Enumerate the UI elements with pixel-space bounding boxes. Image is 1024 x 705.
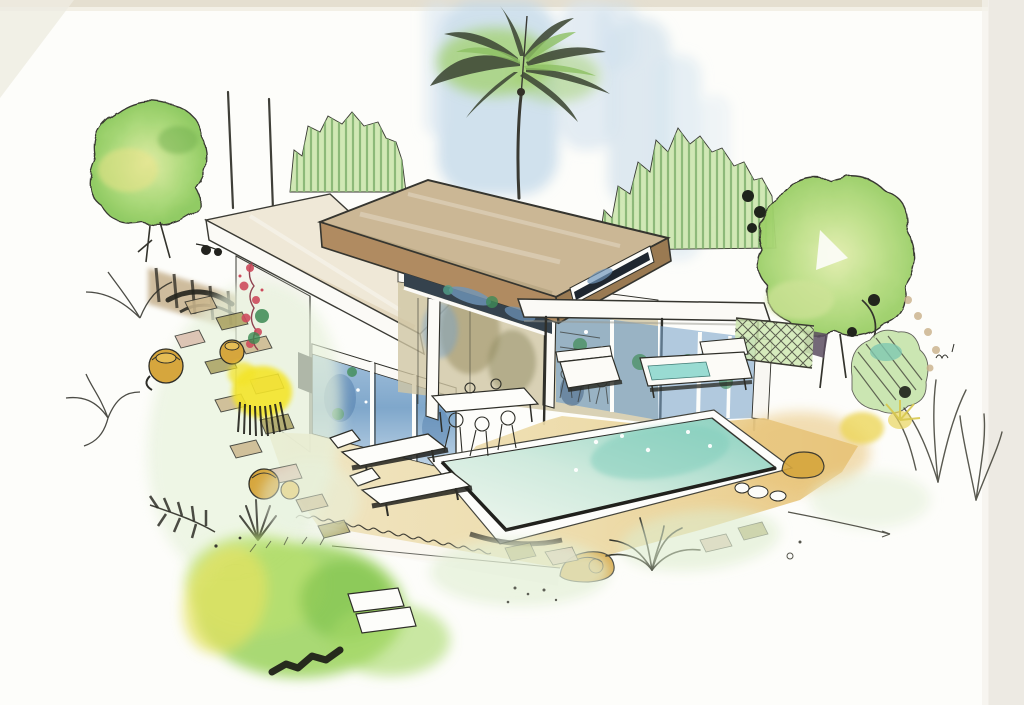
villa-sketch [0,0,1024,705]
artwork-canvas [0,0,1024,705]
